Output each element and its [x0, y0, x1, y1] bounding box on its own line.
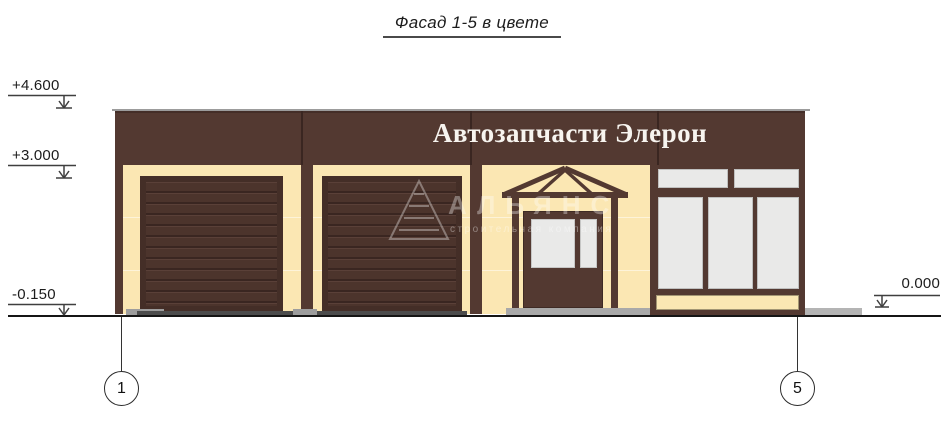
sign-band-seam	[301, 111, 303, 165]
storefront-window-section	[650, 165, 805, 316]
elevation-arrow-icon	[6, 94, 80, 112]
door-glass-left	[531, 219, 575, 268]
elevation-arrow-icon	[872, 294, 942, 312]
display-window-2	[708, 197, 753, 289]
drawing-title-text: Фасад 1-5 в цвете	[383, 13, 561, 38]
axis-number-1: 1	[117, 380, 126, 397]
display-window-1	[658, 197, 703, 289]
axis-line-1	[121, 317, 122, 371]
axis-number-5: 5	[793, 380, 802, 397]
transom-window-2	[734, 169, 799, 188]
transom-window-1	[658, 169, 728, 188]
axis-bubble-1: 1	[104, 371, 139, 406]
axis-line-5	[797, 317, 798, 371]
garage-door-2	[322, 176, 462, 312]
elevation-label-band: +3.000	[12, 147, 60, 164]
display-window-3	[757, 197, 799, 289]
ground-line	[8, 315, 941, 317]
pilaster-mid-2	[470, 165, 482, 314]
pilaster-mid-1	[301, 165, 313, 314]
garage-door-1	[140, 176, 283, 312]
elevation-arrow-icon	[6, 303, 80, 317]
spandrel-panel	[656, 295, 799, 310]
facade-drawing: Фасад 1-5 в цвете Автозапчасти Элерон	[0, 0, 944, 425]
pilaster-left-edge	[115, 165, 123, 314]
canopy-post-right	[611, 196, 618, 314]
axis-bubble-5: 5	[780, 371, 815, 406]
elevation-label-parapet: +4.600	[12, 77, 60, 94]
elevation-label-ground-left: -0.150	[12, 286, 56, 303]
storefront-sign-text: Автозапчасти Элерон	[390, 117, 750, 151]
canopy-post-left	[512, 196, 519, 314]
door-glass-right	[580, 219, 597, 268]
elevation-label-ground-right: 0.000	[884, 275, 940, 292]
drawing-title: Фасад 1-5 в цвете	[0, 13, 944, 38]
elevation-arrow-icon	[6, 164, 80, 182]
